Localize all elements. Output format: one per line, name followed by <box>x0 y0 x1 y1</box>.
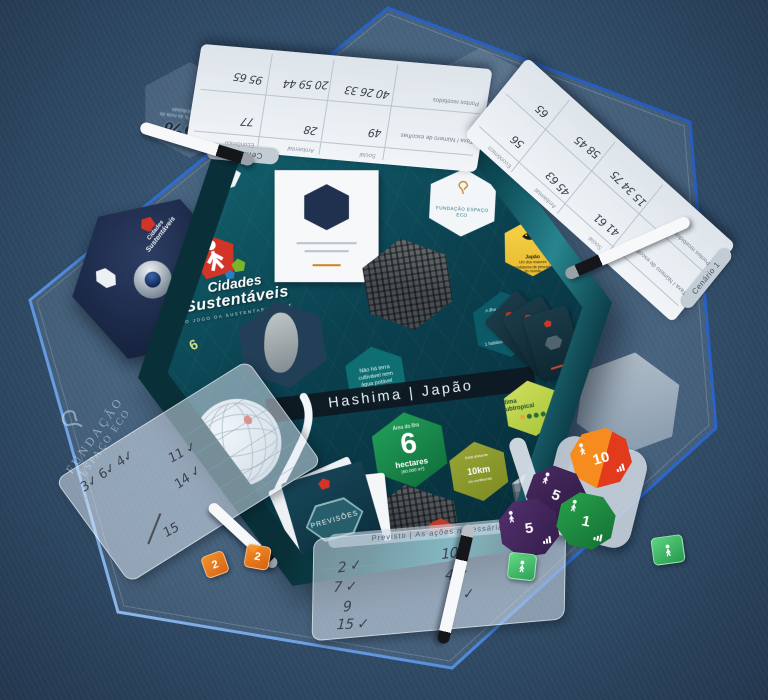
handwritten-score: 49 <box>368 126 382 139</box>
handwritten-score: 20 59 44 <box>272 76 330 91</box>
handwritten-score: 41 61 <box>592 211 622 240</box>
game-logo: Cidades Sustentáveis o jogo da sustentab… <box>161 222 291 243</box>
photo-of-board-game-table: 66% indica aqui a % da roda de sustentab… <box>0 0 768 700</box>
handwritten-entry: 9 <box>343 599 352 616</box>
handwritten-score: 28 <box>303 123 319 138</box>
green-die <box>507 552 538 582</box>
figure-icon <box>663 543 673 557</box>
person-icon <box>540 471 552 486</box>
person-icon <box>577 442 588 457</box>
person-icon <box>506 510 516 524</box>
handwritten-score: 77 <box>240 115 255 129</box>
tree-scribble-icon <box>453 178 474 196</box>
person-icon <box>569 498 580 512</box>
hashima-island-shape <box>263 312 300 374</box>
handwritten-entry: 15 ✓ <box>336 616 369 633</box>
green-die <box>650 534 686 566</box>
handwritten-entry: 7 ✓ <box>333 579 357 596</box>
bar-chart-icon <box>593 533 602 542</box>
foundation-card-text: FUNDAÇÃO ESPAÇO ECO <box>432 205 493 220</box>
bar-chart-icon <box>615 463 625 472</box>
orange-die: 2 <box>243 543 272 571</box>
bar-chart-icon <box>542 536 551 544</box>
handwritten-score: 40 26 33 <box>333 81 391 101</box>
distance-stat-hex: Está distante 10km do continente <box>443 437 516 506</box>
figure-icon <box>517 560 526 574</box>
logo-red-hex-icon <box>317 477 332 491</box>
handwritten-score: 58 45 <box>551 116 603 161</box>
card-navy-hex <box>301 184 353 230</box>
handwritten-score: 95 65 <box>206 65 264 87</box>
flap-number: 6 <box>186 336 200 354</box>
handwritten-score: 56 <box>509 133 527 152</box>
handwritten-score: 45 63 <box>544 169 573 199</box>
